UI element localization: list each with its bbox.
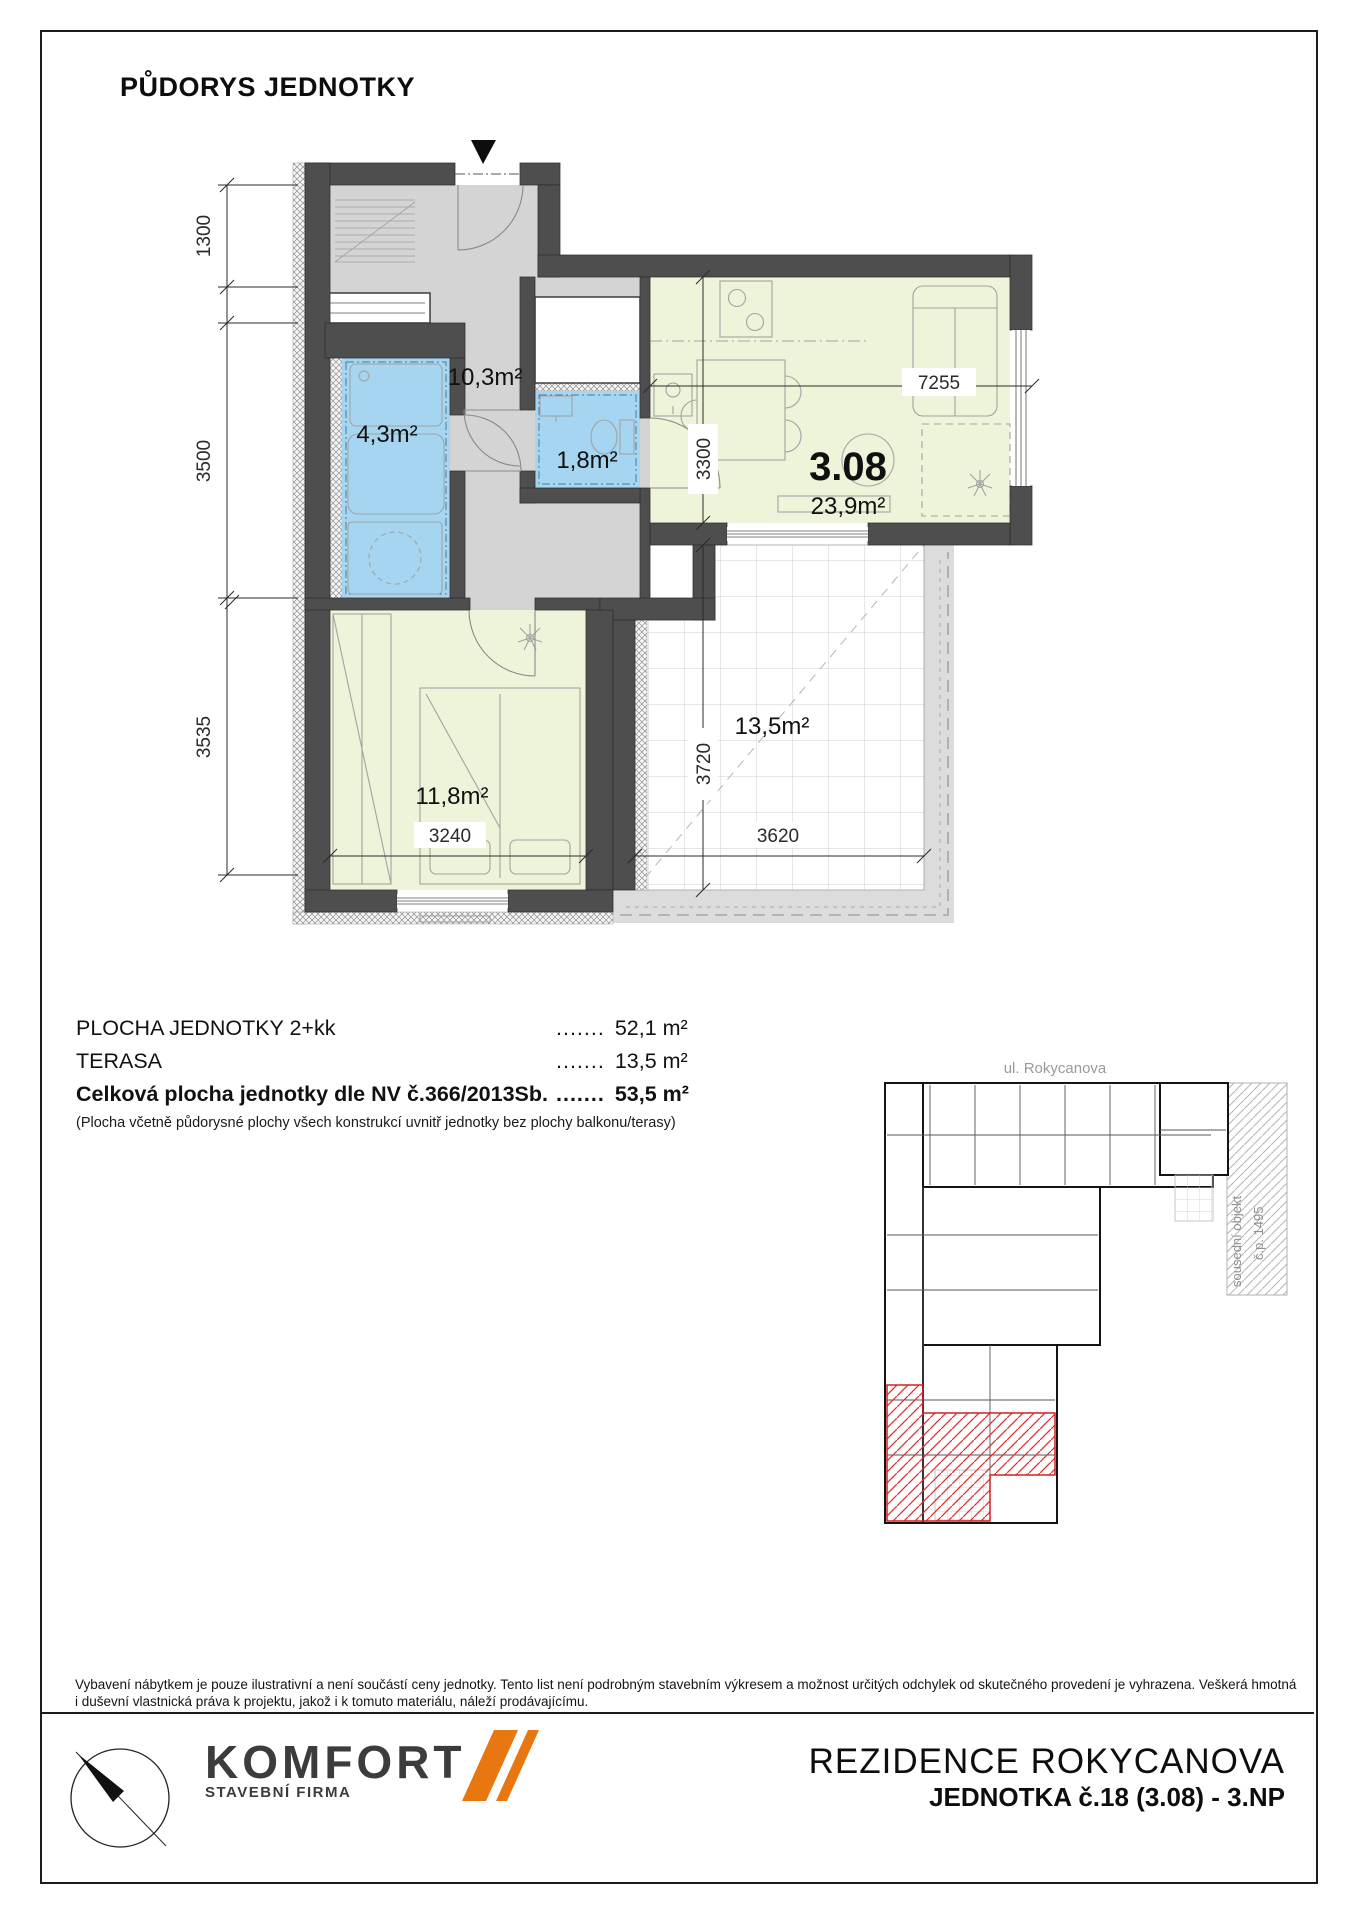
hall-label: 10,3m²: [448, 364, 523, 391]
bathroom-label: 4,3m²: [356, 421, 417, 448]
area-note: (Plocha včetně půdorysné plochy všech ko…: [76, 1115, 736, 1131]
disclaimer-line: Vybavení nábytkem je pouze ilustrativní …: [75, 1676, 1307, 1693]
dim-living-width: 7255: [918, 373, 960, 394]
insulation-hatch: [293, 163, 305, 924]
neighbor-label-1: sousední objekt: [1229, 1196, 1244, 1287]
neighbor-label-2: č.p. 1495: [1251, 1207, 1266, 1261]
area-row-total: Celková plocha jednotky dle NV č.366/201…: [76, 1078, 736, 1111]
dim-bedroom-width: 3240: [429, 826, 471, 847]
site-plan: ul. Rokycanova sousední objekt č.p. 1495: [875, 1055, 1295, 1550]
dim-left-bottom: 3535: [194, 716, 215, 758]
terrace-label: 13,5m²: [735, 713, 810, 740]
logo-slashes-icon: [448, 1728, 548, 1803]
unit-designation: JEDNOTKA č.18 (3.08) - 3.NP: [700, 1782, 1285, 1812]
dim-terrace-depth: 3720: [694, 743, 715, 785]
entrance-arrow-icon: [471, 140, 496, 164]
area-row: PLOCHA JEDNOTKY 2+kk ....... 52,1 m²: [76, 1012, 736, 1045]
north-compass-icon: [58, 1736, 183, 1861]
living-area-label: 23,9m²: [811, 493, 886, 520]
dim-terrace-width: 3620: [757, 826, 799, 847]
bedroom-label: 11,8m²: [416, 783, 489, 810]
company-logo: KOMFORT STAVEBNÍ FIRMA: [205, 1740, 466, 1801]
disclaimer: Vybavení nábytkem je pouze ilustrativní …: [75, 1676, 1307, 1710]
area-row-value: 13,5 m²: [615, 1049, 688, 1074]
footer-divider: [40, 1712, 1314, 1714]
leader-dots: .......: [556, 1082, 605, 1107]
area-row-value: 53,5 m²: [615, 1082, 689, 1107]
area-row-label: Celková plocha jednotky dle NV č.366/201…: [76, 1082, 556, 1107]
area-row-value: 52,1 m²: [615, 1016, 688, 1041]
project-title-block: REZIDENCE ROKYCANOVA JEDNOTKA č.18 (3.08…: [700, 1742, 1285, 1812]
wc-label: 1,8m²: [556, 447, 617, 474]
hall-floor: [330, 185, 538, 275]
unit-floor-plan: 1300 3500 3535 7255 3300 3720 3240 3620: [180, 128, 1050, 928]
area-row: TERASA ....... 13,5 m²: [76, 1045, 736, 1078]
project-name: REZIDENCE ROKYCANOVA: [700, 1742, 1285, 1782]
unit-number-label: 3.08: [809, 445, 887, 489]
area-row-label: TERASA: [76, 1049, 556, 1074]
shaft-niche: [535, 297, 640, 383]
area-summary: PLOCHA JEDNOTKY 2+kk ....... 52,1 m² TER…: [76, 1012, 736, 1131]
leader-dots: .......: [556, 1016, 605, 1041]
leader-dots: .......: [556, 1049, 605, 1074]
dim-left-top: 1300: [194, 215, 215, 257]
wall-niche: [325, 293, 430, 323]
street-label: ul. Rokycanova: [1004, 1060, 1107, 1077]
logo-text: KOMFORT: [205, 1740, 466, 1784]
dim-left-middle: 3500: [194, 440, 215, 482]
floor-plan-sheet: PŮDORYS JEDNOTKY: [0, 0, 1357, 1920]
disclaimer-line: i duševní vlastnická práva k projektu, j…: [75, 1693, 1307, 1710]
page-title: PŮDORYS JEDNOTKY: [120, 72, 415, 103]
bathroom-floor: [342, 358, 450, 598]
area-row-label: PLOCHA JEDNOTKY 2+kk: [76, 1016, 556, 1041]
dim-living-depth: 3300: [694, 438, 715, 480]
